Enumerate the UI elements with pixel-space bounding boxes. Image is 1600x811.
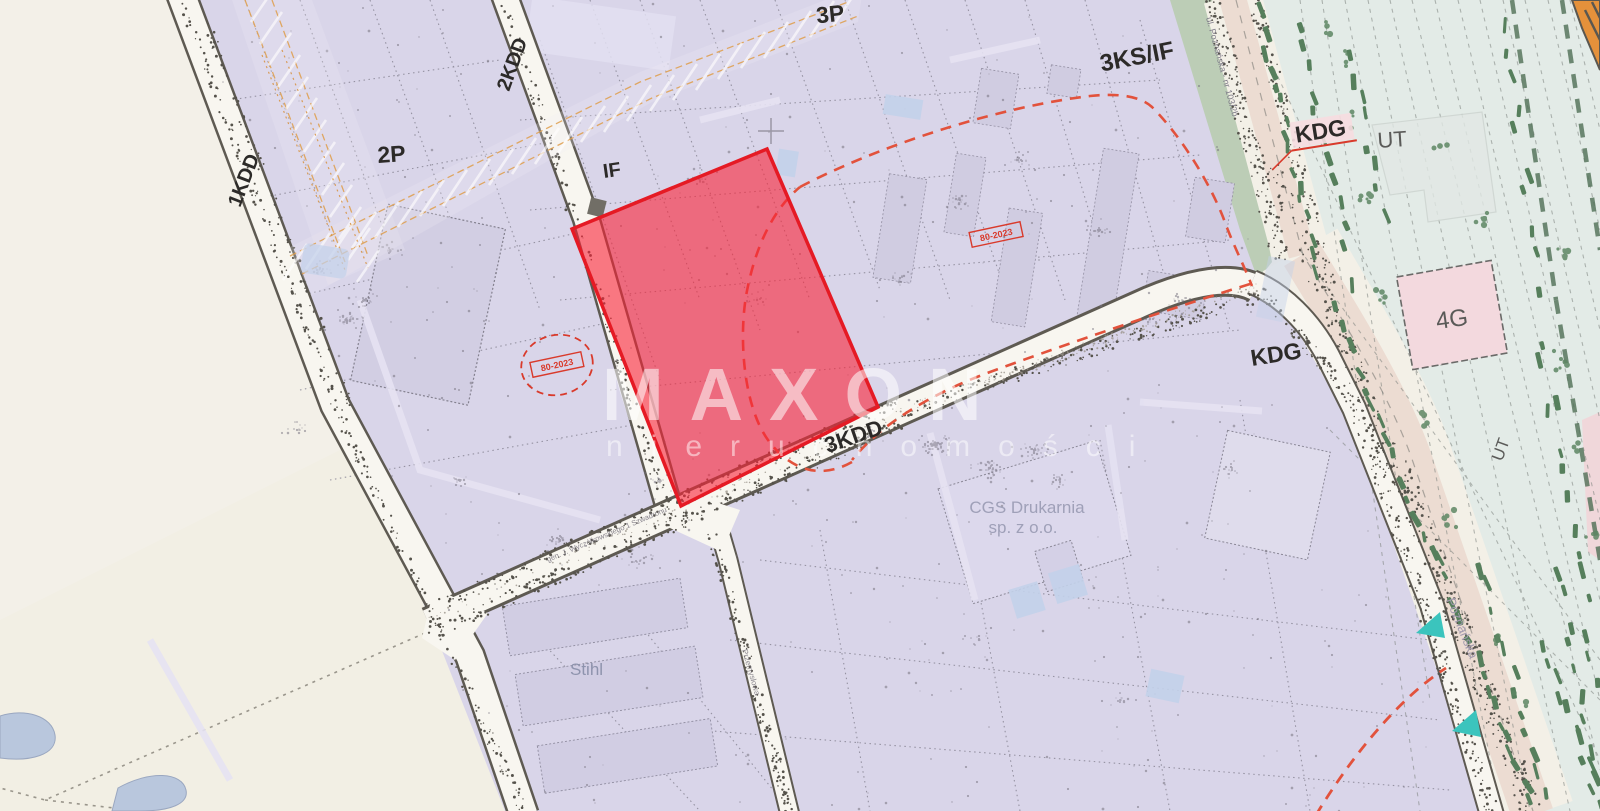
svg-text:3P: 3P [815, 0, 846, 28]
svg-text:2P: 2P [377, 140, 407, 168]
svg-text:CGS Drukarnia: CGS Drukarnia [969, 498, 1085, 517]
svg-text:UT: UT [1377, 126, 1408, 153]
svg-text:IF: IF [602, 159, 623, 183]
svg-text:4G: 4G [1434, 304, 1469, 335]
svg-text:sp. z o.o.: sp. z o.o. [989, 518, 1058, 537]
svg-text:nieruchomości: nieruchomości [606, 430, 1163, 463]
svg-text:Stihl: Stihl [570, 660, 603, 679]
svg-text:MAXON: MAXON [602, 353, 1007, 436]
